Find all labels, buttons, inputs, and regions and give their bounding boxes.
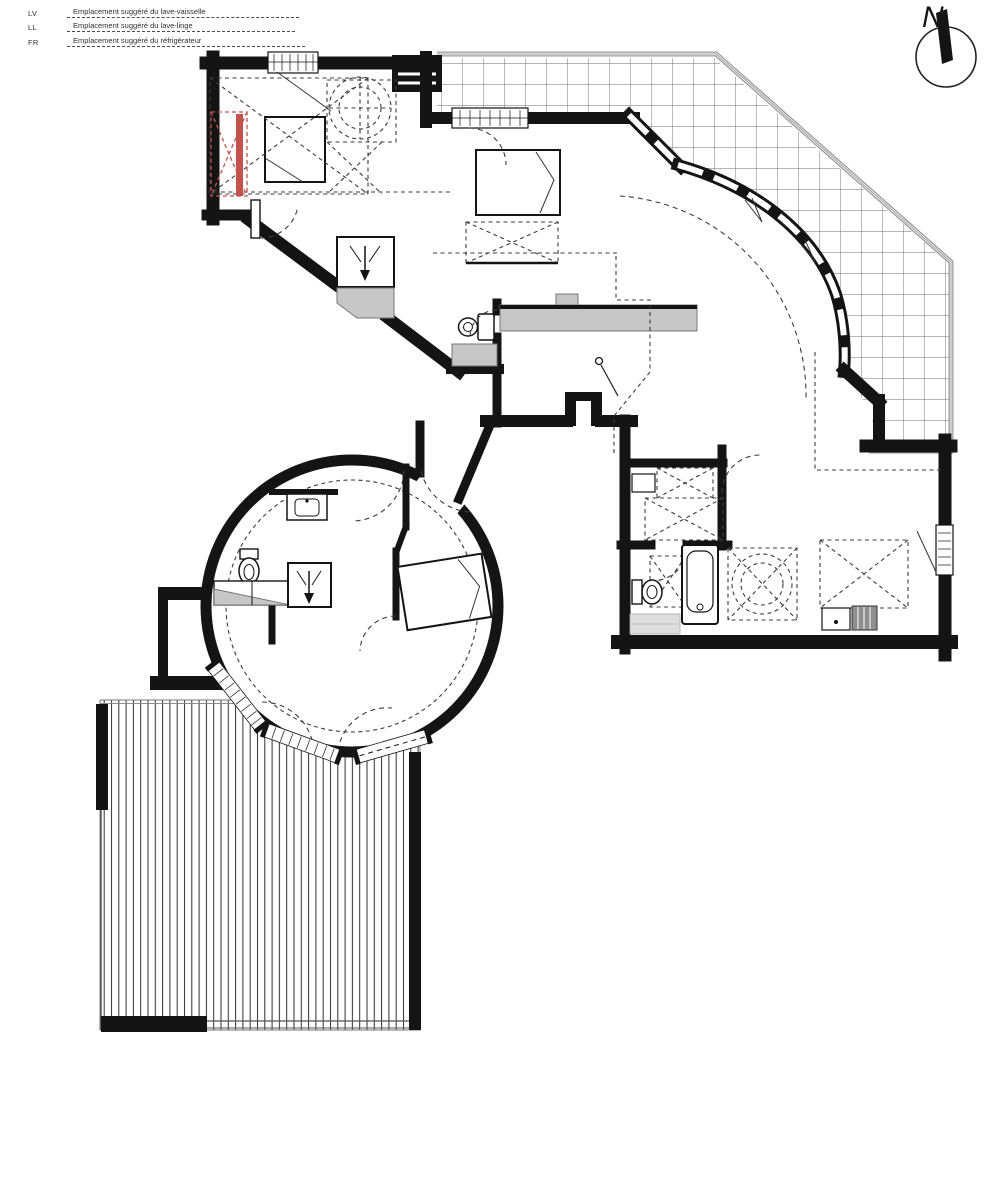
bathtub	[682, 545, 718, 624]
counter	[337, 288, 394, 318]
bed	[265, 117, 325, 182]
legend-row: LV Emplacement suggéré du lave-vaisselle	[28, 3, 305, 18]
bed	[398, 554, 492, 631]
round-room	[205, 460, 498, 765]
legend: LV Emplacement suggéré du lave-vaisselle…	[28, 3, 305, 47]
clearance-arc	[620, 196, 806, 398]
legend-row: LL Emplacement suggéré du lave-linge	[28, 18, 305, 33]
shower	[337, 237, 394, 318]
kitchen-counter	[500, 294, 697, 331]
deck-wall-right	[409, 752, 421, 1030]
window	[268, 52, 318, 73]
legend-abbr: LV	[28, 9, 67, 18]
cabinet	[632, 474, 655, 492]
casement-mark	[917, 531, 936, 572]
toilet	[632, 580, 662, 604]
legend-label: Emplacement suggéré du réfrigérateur	[67, 36, 305, 47]
door-swing	[722, 455, 760, 493]
window	[452, 108, 528, 128]
wardrobe-clearance	[820, 540, 908, 608]
north-label: N	[922, 1, 944, 34]
sink	[287, 494, 327, 520]
deck-wall-bottom	[101, 1016, 207, 1032]
legend-abbr: FR	[28, 38, 67, 47]
bed	[476, 150, 560, 215]
window	[917, 525, 953, 575]
legend-label: Emplacement suggéré du lave-linge	[67, 21, 295, 32]
diagonal-wall	[249, 220, 339, 287]
entry-door	[596, 358, 619, 397]
washing-machine-location	[852, 606, 877, 630]
deck-wall-left	[96, 704, 108, 810]
cabinet	[822, 608, 850, 630]
round-shower-column	[728, 548, 797, 620]
wall-stub	[158, 598, 168, 688]
north-arrow: N	[916, 1, 976, 87]
wing-interior	[630, 455, 908, 634]
legend-abbr: LL	[28, 23, 67, 32]
counter	[452, 344, 497, 366]
floorplan-page: LV Emplacement suggéré du lave-vaisselle…	[0, 0, 1000, 1202]
toilet	[452, 310, 497, 366]
appliance-marker-bar	[236, 114, 243, 196]
floorplan-drawing: N	[0, 0, 1000, 1202]
diagonal-wall	[388, 318, 459, 372]
toilet	[239, 549, 259, 584]
vanity	[214, 581, 290, 605]
shower	[288, 563, 331, 607]
legend-label: Emplacement suggéré du lave-vaisselle	[67, 7, 299, 18]
sideboard	[466, 222, 558, 263]
legend-row: FR Emplacement suggéré du réfrigérateur	[28, 32, 305, 47]
